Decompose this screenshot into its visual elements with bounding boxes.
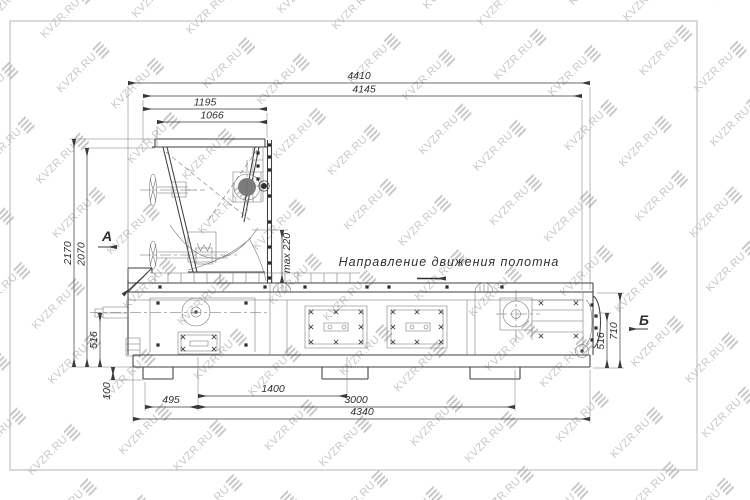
bolt-crosses bbox=[181, 301, 578, 351]
machine-details bbox=[95, 148, 592, 358]
dim-label-1195: 1195 bbox=[194, 97, 217, 109]
view-b-label: Б bbox=[639, 312, 649, 328]
belt-direction-label: Направление движения полотна bbox=[339, 255, 560, 269]
dim-label-100: 100 bbox=[101, 382, 113, 400]
dim-label-max-220: max 220 bbox=[281, 233, 293, 273]
dim-label-4340: 4340 bbox=[350, 406, 374, 418]
drawing-sheet: KVZR.RUKVZR.RUKVZR.RUKVZR.RUKVZR.RUKVZR.… bbox=[0, 0, 750, 500]
dim-label-2070: 2070 bbox=[76, 242, 88, 267]
dim-label-3000: 3000 bbox=[344, 394, 368, 406]
dim-label-710: 710 bbox=[608, 322, 620, 340]
technical-drawing: 4410 4145 1195 1066 2170 2070 516 516 71… bbox=[0, 0, 750, 500]
dim-label-516-right: 516 bbox=[595, 332, 607, 350]
dim-label-2170: 2170 bbox=[62, 241, 74, 266]
bolt-dots bbox=[156, 143, 597, 346]
dim-label-4410: 4410 bbox=[347, 70, 371, 82]
dim-label-1400: 1400 bbox=[261, 383, 285, 395]
dim-label-516-left: 516 bbox=[88, 331, 100, 349]
centerlines bbox=[90, 160, 540, 342]
dim-label-495: 495 bbox=[162, 394, 180, 406]
view-a-label: А bbox=[101, 228, 112, 244]
dim-label-4145: 4145 bbox=[352, 84, 376, 96]
dim-label-1066: 1066 bbox=[200, 110, 224, 122]
